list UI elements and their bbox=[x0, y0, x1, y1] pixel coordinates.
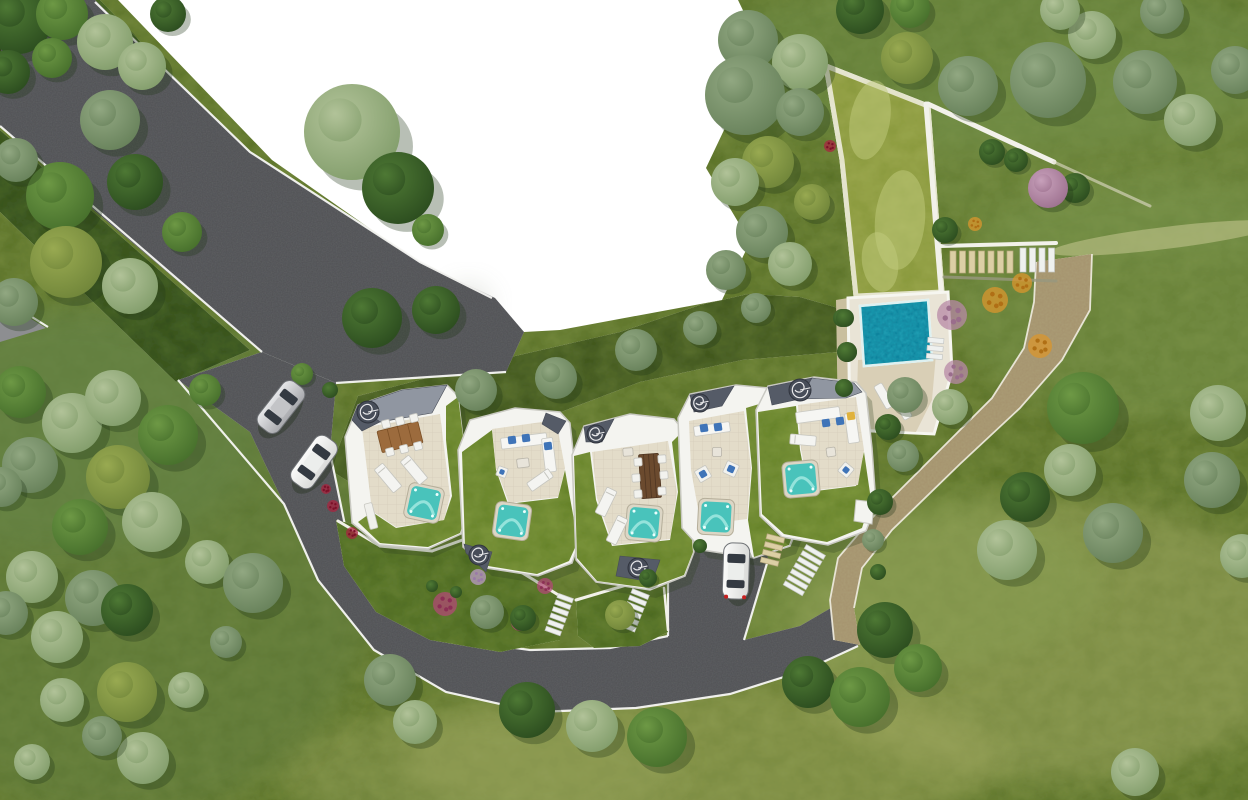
site-plan bbox=[0, 0, 1248, 800]
jacuzzi bbox=[492, 501, 533, 542]
flower-patch bbox=[937, 300, 967, 330]
flower-patch bbox=[470, 569, 486, 585]
blue-cushion bbox=[821, 418, 830, 427]
chair bbox=[658, 487, 667, 496]
chair bbox=[634, 458, 643, 467]
yellow-cushion bbox=[846, 411, 855, 420]
spiral-staircase bbox=[789, 379, 811, 401]
staircase bbox=[926, 337, 944, 359]
flower-patch bbox=[321, 484, 331, 494]
bush bbox=[693, 539, 707, 553]
blue-cushion bbox=[522, 434, 531, 443]
flower-patch bbox=[824, 140, 836, 152]
spiral-staircase bbox=[469, 545, 489, 565]
villa-5 bbox=[756, 377, 882, 553]
chair bbox=[395, 416, 405, 426]
bush bbox=[870, 564, 886, 580]
chair bbox=[385, 447, 395, 457]
villa-1 bbox=[345, 385, 475, 557]
chair bbox=[399, 444, 409, 454]
side-table bbox=[826, 447, 836, 457]
site-plan-canvas bbox=[0, 0, 1248, 800]
rear-window bbox=[726, 580, 744, 589]
windshield bbox=[727, 554, 745, 564]
chair bbox=[381, 419, 391, 429]
flower-patch bbox=[944, 360, 968, 384]
bush bbox=[426, 580, 438, 592]
chair bbox=[634, 490, 643, 499]
flower-patch bbox=[346, 527, 358, 539]
jacuzzi bbox=[624, 503, 663, 542]
chair bbox=[660, 471, 669, 480]
blue-cushion bbox=[713, 422, 722, 431]
chair bbox=[413, 441, 423, 451]
bush bbox=[322, 382, 338, 398]
flower-patch bbox=[1012, 273, 1032, 293]
bush bbox=[450, 586, 462, 598]
blue-cushion bbox=[508, 436, 517, 445]
chair bbox=[658, 455, 667, 464]
swimming-pool bbox=[860, 300, 932, 366]
spiral-staircase bbox=[691, 394, 709, 412]
flower-patch bbox=[982, 287, 1008, 313]
spiral-staircase bbox=[587, 425, 605, 443]
spiral-staircase bbox=[357, 401, 379, 423]
flower-patch bbox=[968, 217, 982, 231]
side-table bbox=[623, 448, 634, 457]
chair bbox=[632, 474, 641, 483]
flower-patch bbox=[1028, 334, 1052, 358]
bush bbox=[837, 342, 857, 362]
jacuzzi bbox=[403, 482, 446, 525]
jacuzzi bbox=[697, 498, 735, 536]
bush bbox=[835, 379, 853, 397]
blue-cushion bbox=[544, 442, 553, 451]
bush bbox=[836, 309, 854, 327]
chair bbox=[409, 413, 419, 423]
blue-cushion bbox=[699, 423, 708, 432]
villa-2 bbox=[458, 408, 586, 584]
staircase bbox=[950, 251, 1013, 273]
side-table bbox=[516, 458, 529, 468]
flower-patch bbox=[537, 578, 553, 594]
sun-lounger bbox=[790, 434, 817, 446]
flower-patch bbox=[327, 500, 339, 512]
jacuzzi bbox=[781, 459, 820, 498]
blue-cushion bbox=[835, 416, 844, 425]
side-table bbox=[713, 448, 722, 457]
